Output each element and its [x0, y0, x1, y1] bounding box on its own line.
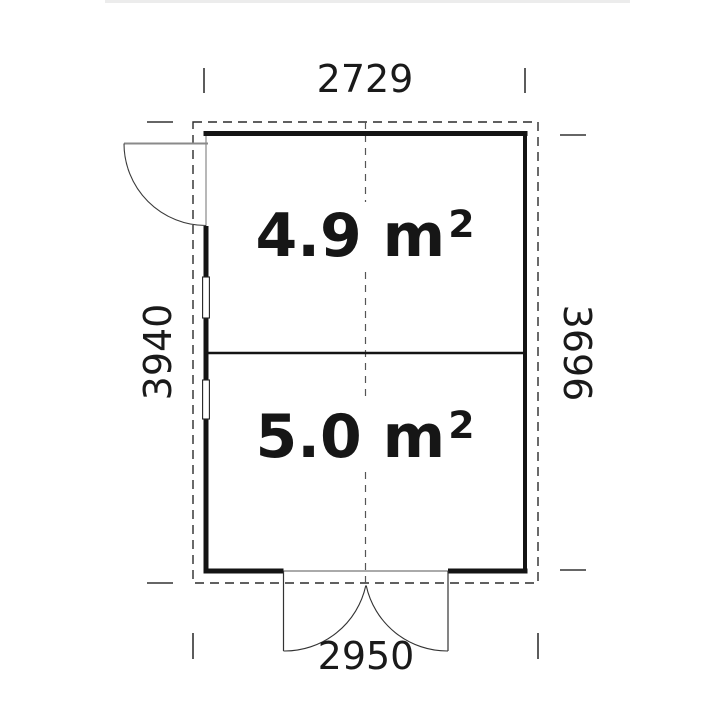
dimension-width-bottom: 2950	[318, 637, 415, 675]
window-1	[203, 277, 210, 318]
dimension-height-left: 3940	[139, 304, 177, 401]
room-area-label-2: 5.0 m2	[255, 407, 474, 467]
floor-plan-drawing	[0, 0, 716, 716]
window-2	[203, 380, 210, 419]
left-door	[124, 136, 208, 226]
room-1-area-value: 4.9 m	[255, 201, 445, 271]
dimension-width-top: 2729	[317, 60, 414, 98]
dimension-height-right: 3696	[558, 305, 596, 402]
room-1-area-superscript: 2	[448, 206, 474, 244]
floor-plan-image: 2729 3940 3696 2950 4.9 m2 5.0 m2	[0, 0, 716, 716]
room-2-area-superscript: 2	[448, 407, 474, 445]
room-2-area-value: 5.0 m	[255, 402, 445, 472]
room-area-label-1: 4.9 m2	[255, 206, 474, 266]
